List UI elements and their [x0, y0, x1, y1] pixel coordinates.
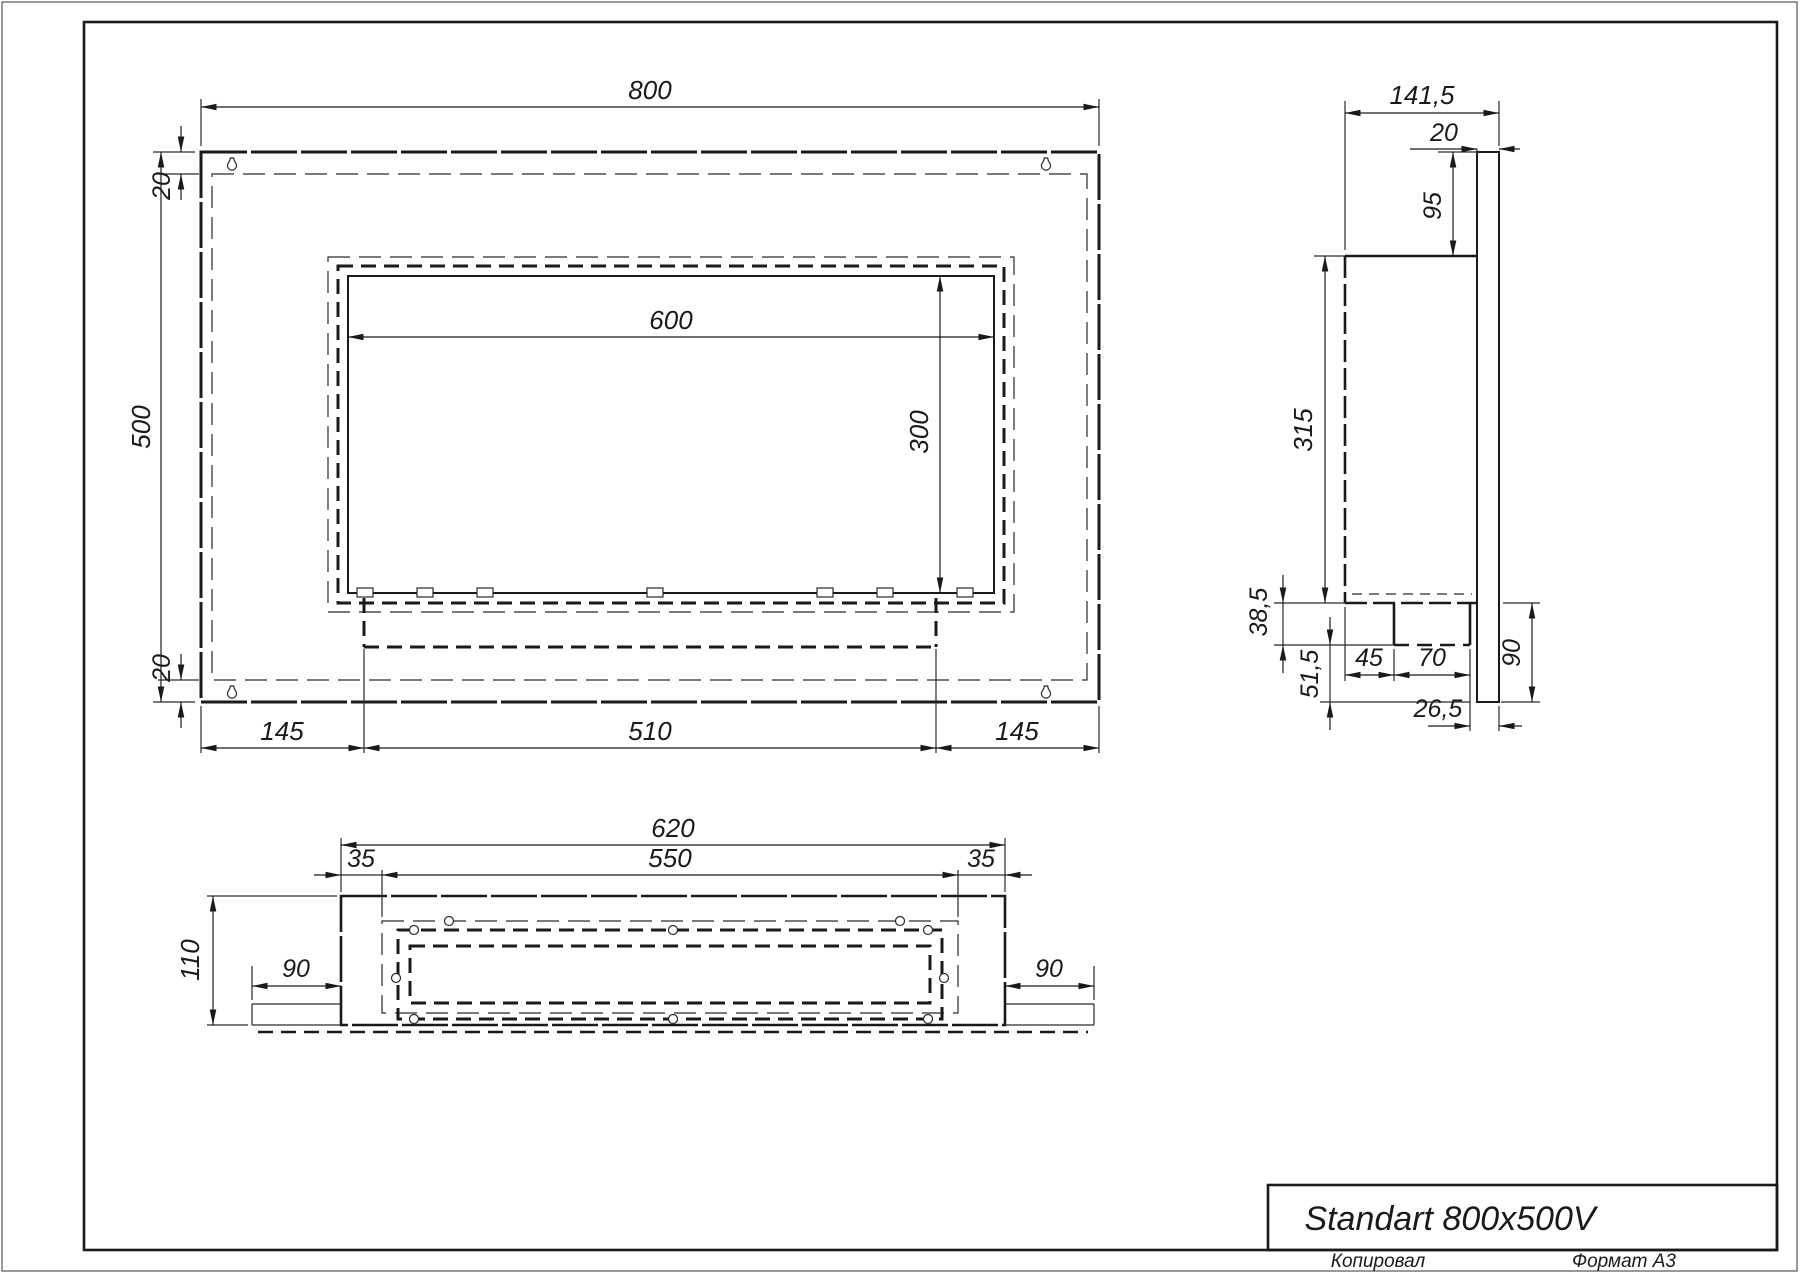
dim-145-left-label: 145 — [260, 716, 304, 746]
dim-315-label: 315 — [1288, 408, 1318, 452]
dim-20-bottom-label: 20 — [148, 654, 176, 683]
dim-600-label: 600 — [649, 305, 693, 335]
dim-35-right-label: 35 — [967, 845, 995, 873]
dim-26-5-label: 26,5 — [1413, 695, 1463, 723]
footer-copied-label: Копировал — [1331, 1251, 1426, 1272]
dim-510-label: 510 — [628, 716, 672, 746]
dim-20-top-label: 20 — [148, 172, 176, 201]
dim-20-panel-label: 20 — [1429, 119, 1458, 147]
dim-110-label: 110 — [175, 939, 205, 981]
dim-95-label: 95 — [1419, 192, 1447, 220]
dim-620-label: 620 — [651, 813, 695, 843]
dim-550-label: 550 — [648, 843, 692, 873]
footer-format-label: Формат A3 — [1572, 1251, 1676, 1272]
dim-90-left-label: 90 — [282, 955, 310, 983]
dim-90-right-label: 90 — [1035, 955, 1063, 983]
technical-drawing: 800 500 20 20 600 300 145 510 145 — [0, 0, 1800, 1273]
dim-145-right-label: 145 — [995, 716, 1039, 746]
dim-90-side-label: 90 — [1498, 639, 1526, 667]
dim-141-5-label: 141,5 — [1389, 80, 1455, 110]
title-model-name: Standart 800x500V — [1304, 1200, 1598, 1238]
dim-45-label: 45 — [1355, 644, 1383, 672]
dim-35-left-label: 35 — [347, 845, 375, 873]
dim-70-label: 70 — [1418, 644, 1446, 672]
dim-500-label: 500 — [126, 405, 156, 449]
dim-51-5-label: 51,5 — [1296, 650, 1324, 699]
dim-800-label: 800 — [628, 75, 672, 105]
dim-300-label: 300 — [904, 410, 934, 454]
drawing-sheet: 800 500 20 20 600 300 145 510 145 — [0, 0, 1800, 1273]
dim-38-5-label: 38,5 — [1245, 588, 1273, 637]
sheet-edge — [2, 2, 1797, 1271]
